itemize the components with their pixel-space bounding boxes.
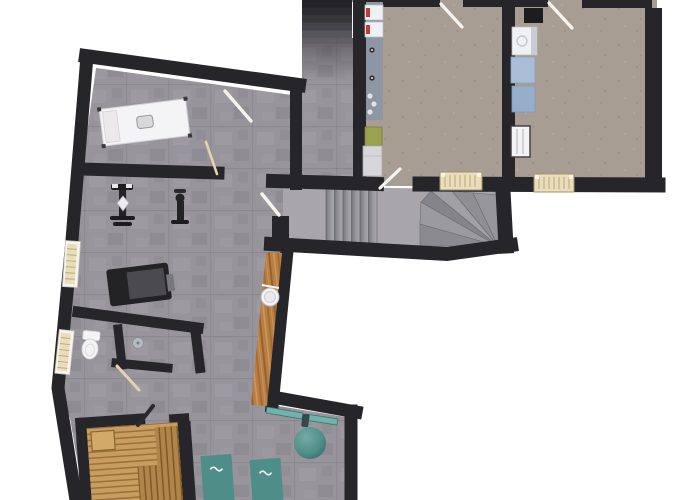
machine-base-bar <box>110 216 135 220</box>
appliance-counter <box>363 2 383 176</box>
flue-box <box>524 8 543 23</box>
stair-hall-right-wall <box>503 191 506 246</box>
laundry-top-wall-left <box>515 0 548 7</box>
low-cabinet <box>363 146 382 176</box>
corridor-stair-shadow <box>302 36 358 82</box>
table-corner <box>188 133 192 137</box>
green-bin <box>365 127 382 146</box>
machine-handle <box>126 184 132 188</box>
lounger-mat <box>250 458 284 500</box>
radiator-cap <box>441 173 445 177</box>
straight-stair-flight <box>326 189 377 247</box>
shower-drain-center <box>136 341 139 344</box>
corridor-left-wall <box>290 82 302 190</box>
table-corner <box>183 97 187 101</box>
floor-plan-canvas <box>0 0 700 500</box>
stair-door-stub-wall <box>272 216 289 246</box>
exercise-ball <box>294 427 326 459</box>
lounger-left <box>200 454 234 500</box>
round-basin-inner <box>265 292 276 303</box>
stair-tread <box>360 189 369 247</box>
stair-tread <box>335 189 344 247</box>
lounger-mat <box>200 454 234 500</box>
machine-base-bar <box>113 222 132 226</box>
sauna-stool <box>91 430 115 451</box>
boiler-indicator <box>366 25 370 34</box>
machine-handle <box>112 184 118 188</box>
valve-knob-center <box>371 77 373 79</box>
floor-plan-page <box>0 0 700 500</box>
upper-stair-tread <box>302 0 352 8</box>
massage-partition-wall <box>80 169 218 173</box>
wc-right-wall <box>195 328 200 368</box>
boiler-indicator <box>366 8 370 17</box>
window-upper-left <box>62 241 80 288</box>
upper-stair-flight <box>302 0 355 38</box>
upper-stair-tread <box>302 15 352 23</box>
radiator-cap <box>569 175 573 179</box>
upper-stair-tread <box>302 30 352 38</box>
wc-left-stub-wall <box>118 329 122 365</box>
stair-tread <box>369 189 378 247</box>
sauna-bench-lower <box>137 465 160 500</box>
stair-tread <box>343 189 352 247</box>
laundry-top-wall-right <box>582 0 652 8</box>
massage-table-tray <box>136 115 153 129</box>
stair-tread <box>326 189 335 247</box>
sauna <box>75 410 196 500</box>
machine-handlebar <box>174 189 186 193</box>
machine-frame <box>177 201 184 221</box>
radiator-body <box>440 172 482 190</box>
utility-top-wall-right <box>463 0 503 7</box>
radiator-cap <box>477 173 481 177</box>
upper-stair-tread <box>302 8 352 16</box>
stair-hall-bottom-wall <box>271 244 511 254</box>
white-radiator <box>511 126 530 157</box>
table-corner <box>97 107 101 111</box>
dryer-2 <box>512 86 535 112</box>
table-corner <box>101 144 105 148</box>
radiator-laundry <box>534 174 574 192</box>
bench-deck <box>126 268 166 299</box>
stair-tread <box>352 189 361 247</box>
upper-stair-tread <box>302 23 352 31</box>
radiator-utility <box>440 172 482 190</box>
gauge-dial <box>367 93 373 99</box>
valve-knob-center <box>371 49 373 51</box>
dryer-1 <box>511 57 535 83</box>
gauge-dial <box>367 109 373 115</box>
laundry-right-wall <box>645 8 662 187</box>
radiator-cap <box>535 175 539 179</box>
lounger-right <box>250 458 284 500</box>
machine-base-bar <box>171 220 189 224</box>
washer-side-shade <box>531 27 537 55</box>
gauge-dial <box>371 101 377 107</box>
winder-stairs <box>420 191 498 246</box>
